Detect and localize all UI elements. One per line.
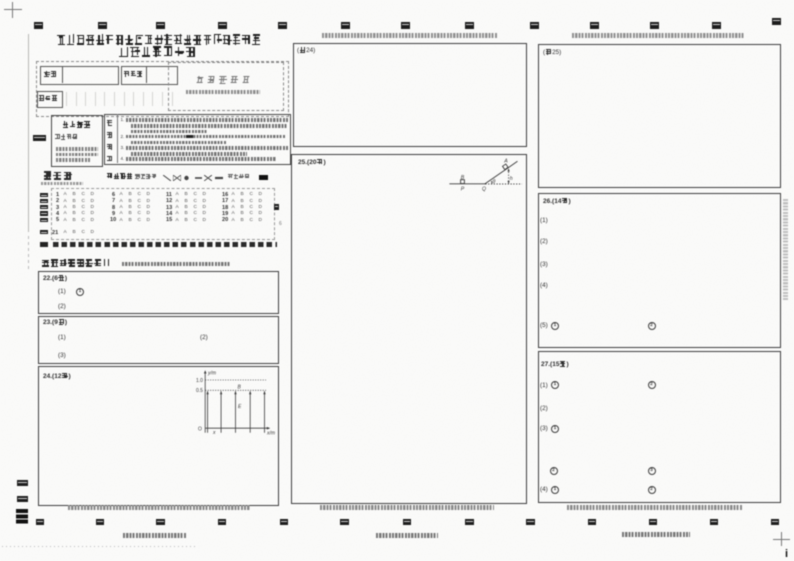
svg-text:h: h (510, 176, 513, 182)
svg-text:y/m: y/m (207, 371, 216, 377)
svg-text:B: B (238, 385, 242, 391)
svg-text:A: A (503, 159, 508, 165)
svg-text:O: O (198, 427, 202, 433)
svg-text:θ: θ (493, 179, 496, 185)
svg-text:E: E (238, 404, 242, 410)
svg-text:x: x (212, 430, 216, 436)
svg-text:Q: Q (482, 187, 486, 193)
svg-text:1.0: 1.0 (196, 378, 203, 384)
svg-text:B: B (461, 175, 465, 181)
svg-text:x/m: x/m (266, 431, 275, 437)
svg-text:0.5: 0.5 (196, 388, 203, 394)
svg-text:P: P (461, 187, 465, 193)
